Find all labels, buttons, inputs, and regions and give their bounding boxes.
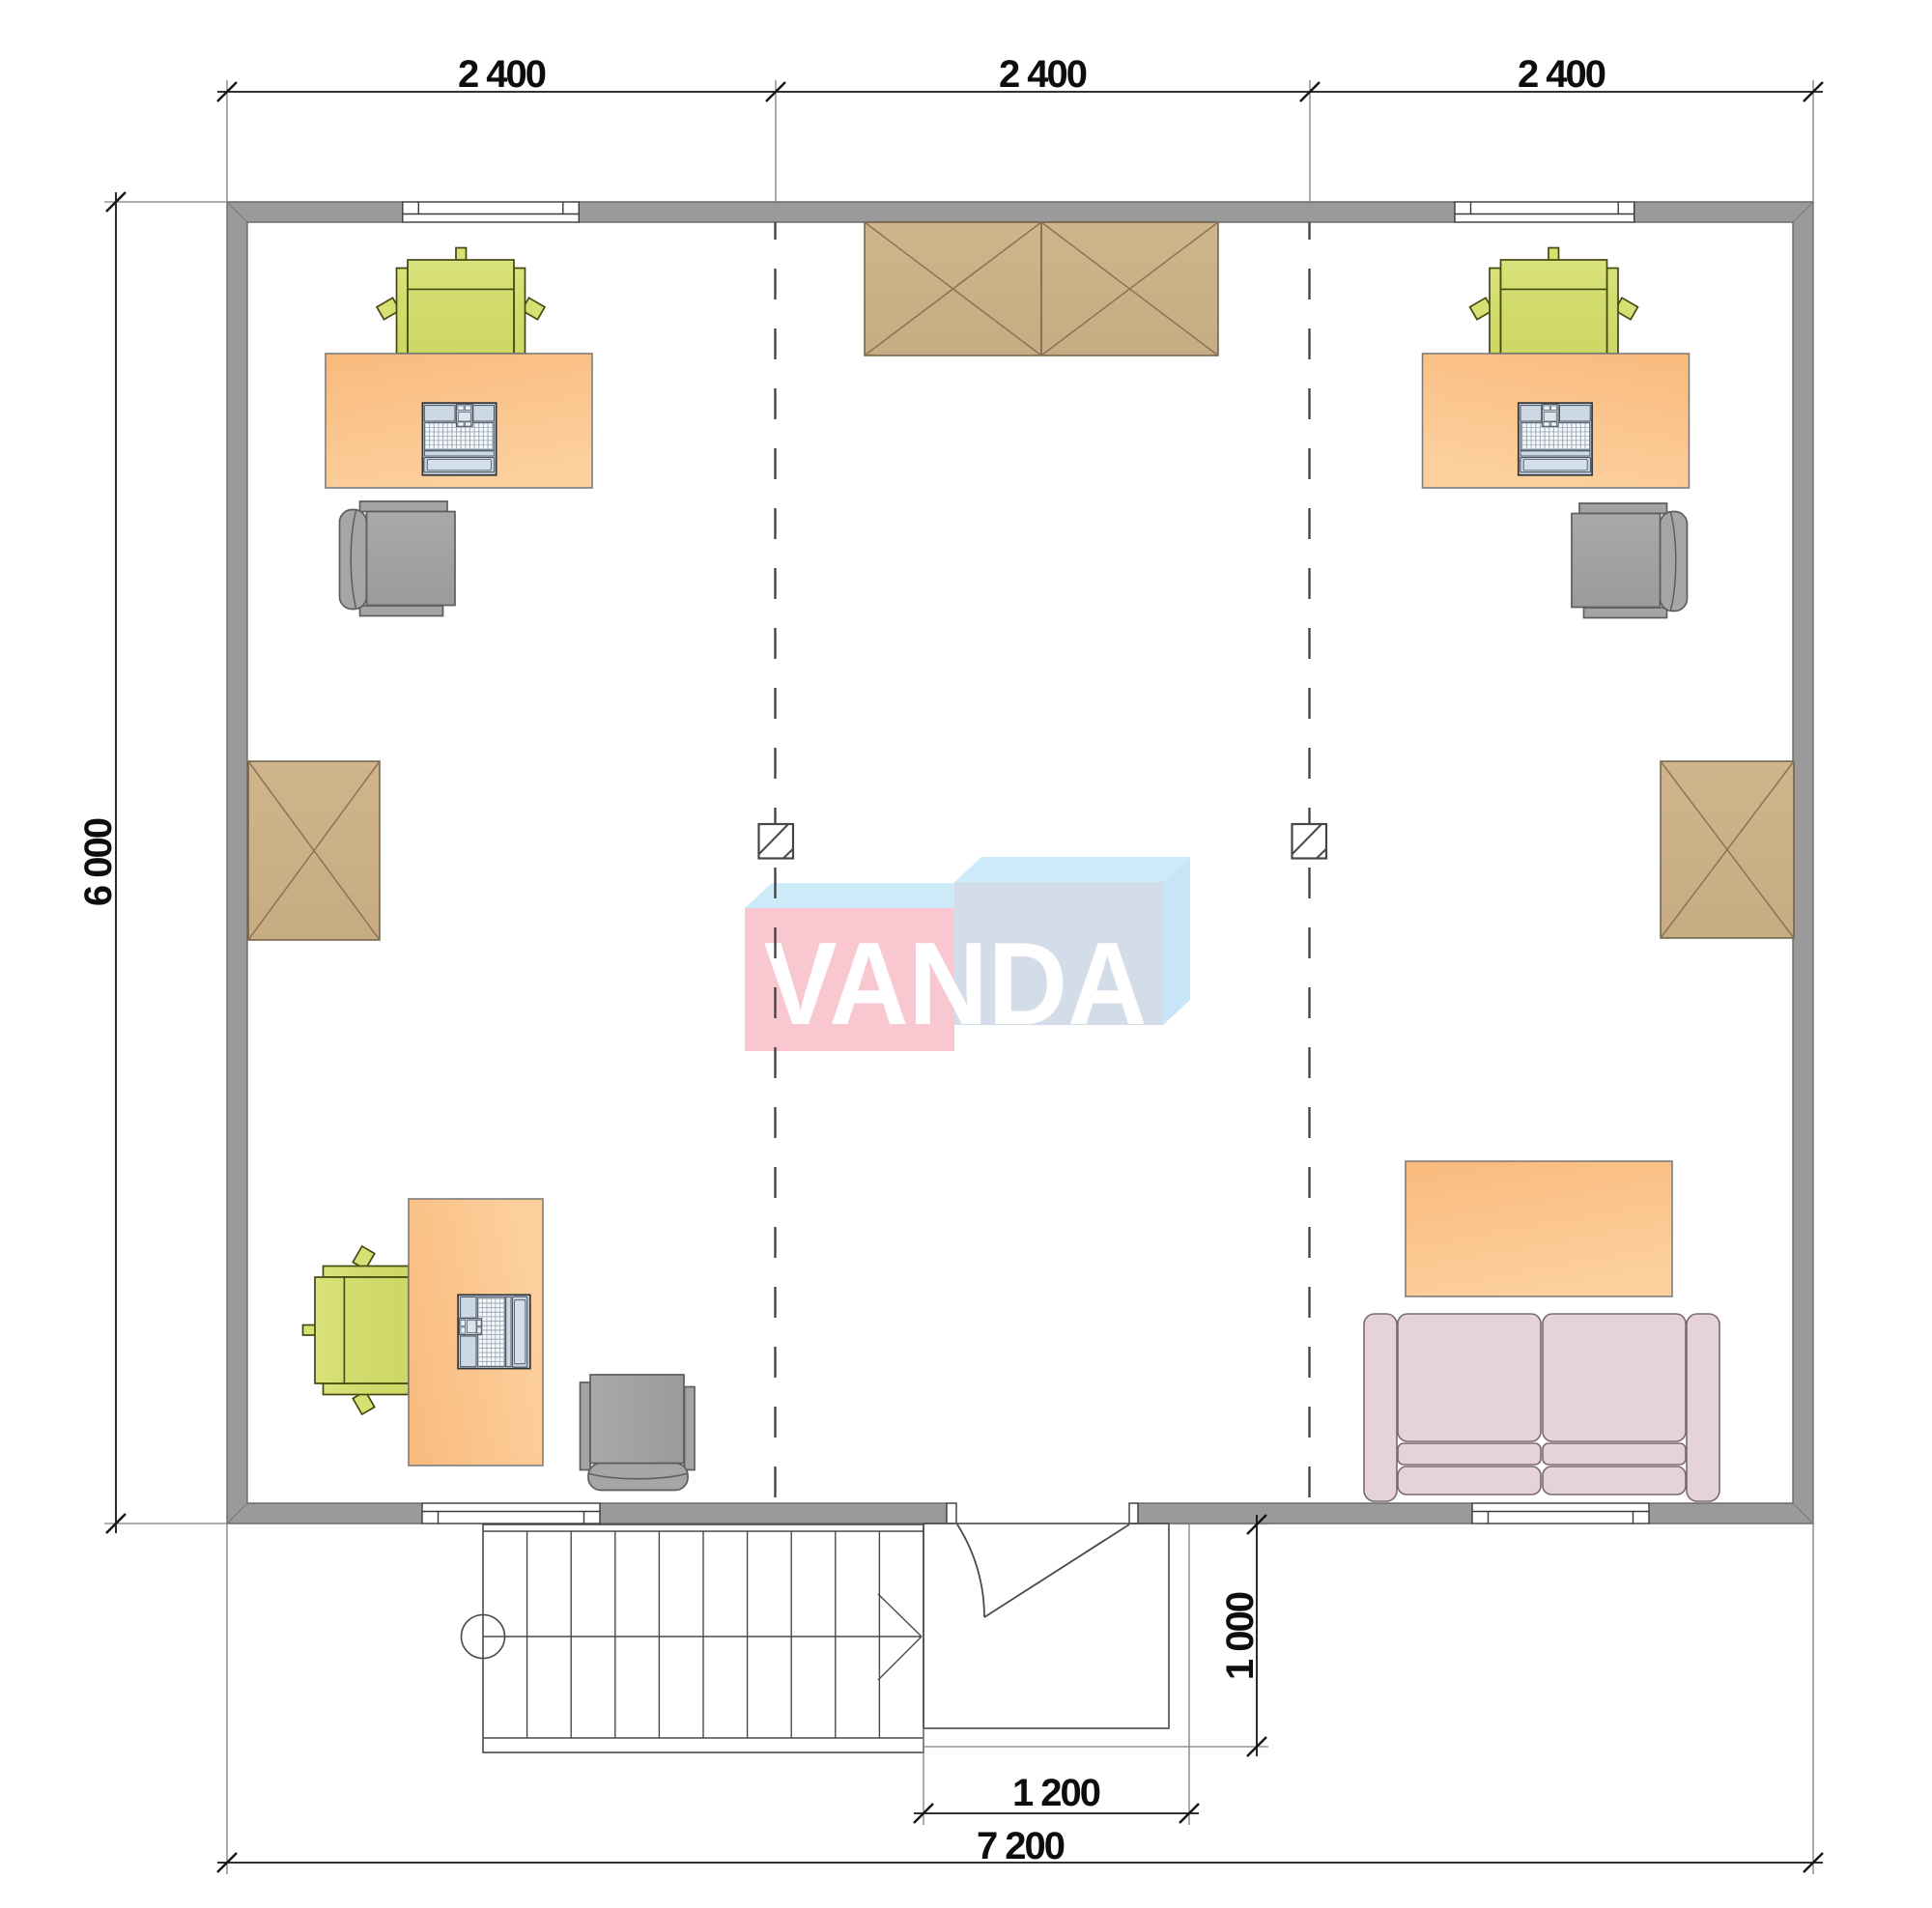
svg-text:2 400: 2 400 — [1518, 53, 1605, 96]
svg-text:6 000: 6 000 — [77, 818, 120, 906]
svg-text:VANDA: VANDA — [764, 918, 1148, 1049]
svg-text:7 200: 7 200 — [977, 1825, 1065, 1867]
svg-text:1 200: 1 200 — [1012, 1772, 1100, 1814]
svg-text:2 400: 2 400 — [458, 53, 546, 96]
svg-text:2 400: 2 400 — [999, 53, 1087, 96]
svg-text:1 000: 1 000 — [1219, 1592, 1262, 1680]
